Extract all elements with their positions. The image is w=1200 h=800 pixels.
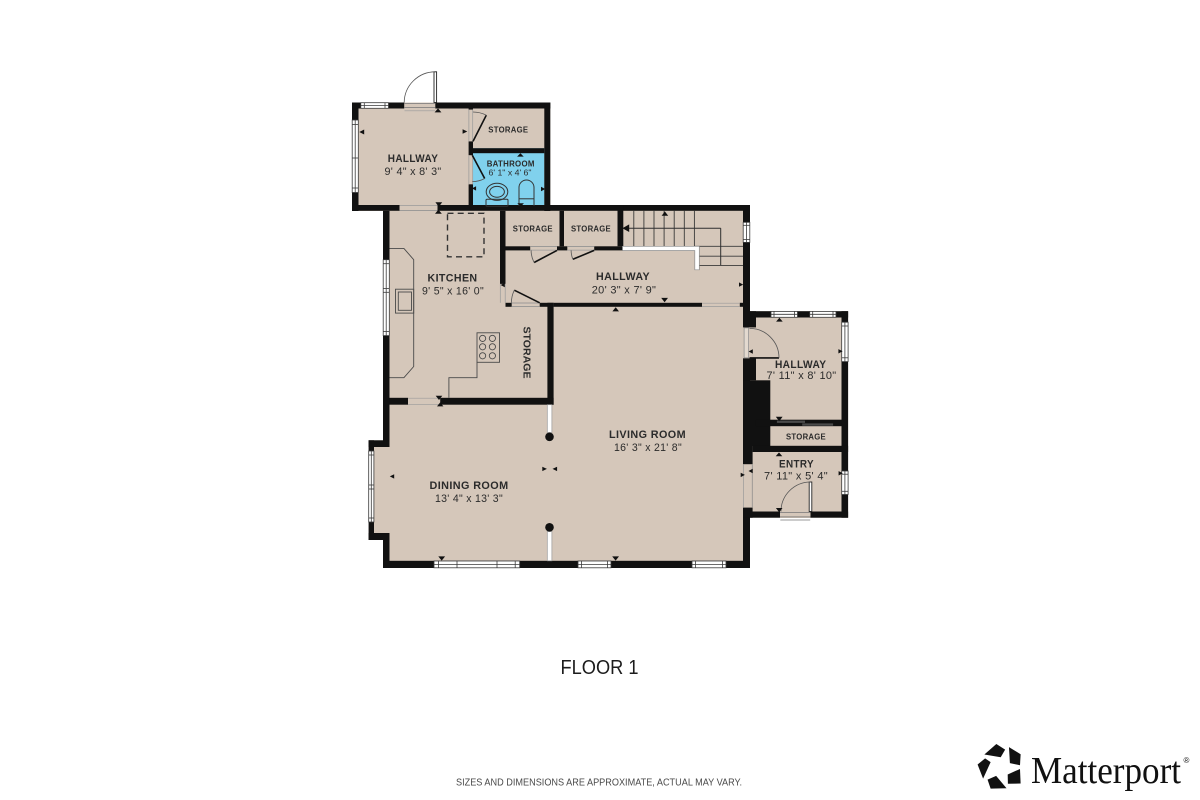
svg-text:STORAGE: STORAGE: [786, 431, 826, 441]
svg-text:7' 11" x 8' 10": 7' 11" x 8' 10": [767, 370, 837, 382]
svg-text:13' 4" x 13' 3": 13' 4" x 13' 3": [435, 493, 503, 505]
svg-text:SIZES AND DIMENSIONS ARE APPRO: SIZES AND DIMENSIONS ARE APPROXIMATE, AC…: [456, 778, 742, 789]
svg-text:STORAGE: STORAGE: [571, 224, 611, 234]
svg-text:16' 3" x 21' 8": 16' 3" x 21' 8": [614, 442, 682, 454]
svg-text:STORAGE: STORAGE: [513, 224, 553, 234]
svg-text:Matterport: Matterport: [1031, 750, 1181, 792]
svg-text:FLOOR 1: FLOOR 1: [561, 656, 639, 679]
svg-text:LIVING ROOM: LIVING ROOM: [609, 429, 686, 441]
svg-text:HALLWAY: HALLWAY: [596, 271, 650, 283]
svg-text:20' 3" x 7' 9": 20' 3" x 7' 9": [592, 285, 657, 297]
svg-text:KITCHEN: KITCHEN: [428, 272, 478, 284]
svg-text:HALLWAY: HALLWAY: [388, 153, 439, 165]
svg-text:9' 4" x 8' 3": 9' 4" x 8' 3": [385, 166, 442, 178]
svg-text:7' 11" x 5' 4": 7' 11" x 5' 4": [764, 471, 828, 483]
svg-text:9' 5" x 16' 0": 9' 5" x 16' 0": [422, 285, 484, 297]
svg-text:STORAGE: STORAGE: [488, 124, 528, 134]
svg-text:ENTRY: ENTRY: [779, 458, 814, 470]
svg-text:STORAGE: STORAGE: [521, 327, 532, 379]
svg-text:DINING ROOM: DINING ROOM: [430, 480, 509, 492]
svg-text:BATHROOM: BATHROOM: [487, 159, 535, 169]
svg-text:6' 1" x 4' 6": 6' 1" x 4' 6": [489, 169, 532, 178]
svg-text:®: ®: [1184, 756, 1190, 765]
